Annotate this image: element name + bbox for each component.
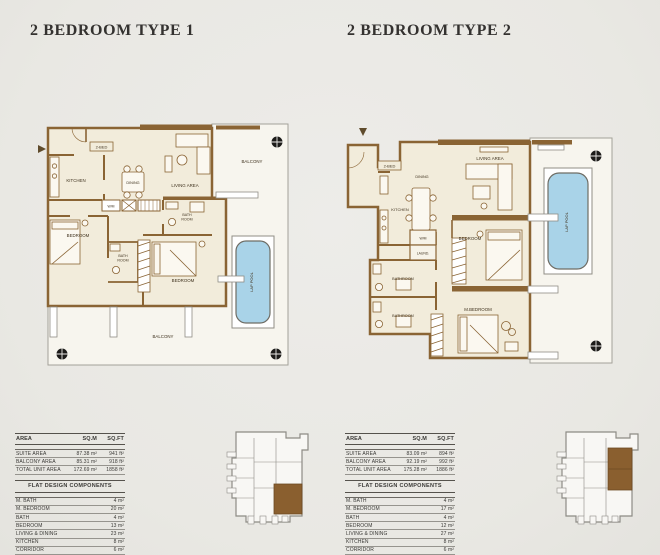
table-row: BATH4 m² [345, 514, 455, 522]
table-row: M. BEDROOM17 m² [345, 506, 455, 514]
bathroom2-label-line2: ROOM [117, 259, 128, 263]
row-sqft: 1858 ft² [97, 467, 124, 473]
kitchen-counter-icon [50, 157, 59, 197]
bathroom2-label-line1: BATH [118, 254, 128, 258]
row-label: BALCONY AREA [346, 459, 397, 465]
bedroom-label: BEDROOM [459, 236, 482, 241]
table-row: KITCHEN8 m² [15, 539, 125, 547]
row-label: CORRIDOR [346, 547, 427, 553]
unit-tag-label: 2-BED [384, 164, 396, 169]
row-sqft: 894 ft² [427, 451, 454, 457]
area-table-type1: AREA SQ.M SQ.FT SUITE AREA 87.38 m² 941 … [15, 433, 125, 555]
table-row: LIVING & DINING27 m² [345, 530, 455, 538]
bedroom2-label: BEDROOM [172, 278, 195, 283]
row-label: SUITE AREA [346, 451, 397, 457]
row-label: BEDROOM [346, 523, 427, 529]
area-table-type2: AREA SQ.M SQ.FT SUITE AREA 83.09 m² 894 … [345, 433, 455, 555]
keyplan-type2 [554, 428, 646, 532]
row-value: 4 m² [427, 515, 454, 521]
row-value: 20 m² [97, 506, 124, 512]
highlighted-unit [274, 484, 302, 514]
table-row: M. BEDROOM20 m² [15, 506, 125, 514]
kitchen-label: KITCHEN [391, 207, 409, 212]
section-title: FLAT DESIGN COMPONENTS [345, 480, 455, 493]
row-label: KITCHEN [16, 539, 97, 545]
section-title: FLAT DESIGN COMPONENTS [15, 480, 125, 493]
row-sqft: 1886 ft² [427, 467, 454, 473]
component-rows: M. BATH4 m² M. BEDROOM17 m² BATH4 m² BED… [345, 497, 455, 555]
row-value: 6 m² [97, 547, 124, 553]
row-value: 13 m² [97, 523, 124, 529]
table-row: CORRIDOR6 m² [345, 547, 455, 555]
keyplan-type1 [224, 428, 316, 532]
row-label: M. BEDROOM [16, 506, 97, 512]
row-sqm: 175.28 m² [397, 467, 427, 473]
table-row: TOTAL UNIT AREA 175.28 m² 1886 ft² [345, 466, 455, 474]
row-value: 8 m² [97, 539, 124, 545]
dining-label: DINING [126, 181, 139, 185]
row-label: BEDROOM [16, 523, 97, 529]
bathroom1-label-line1: BATH [182, 213, 192, 217]
balcony-top-label: BALCONY [242, 159, 263, 164]
col-area: AREA [346, 436, 397, 442]
table-row: KITCHEN8 m² [345, 539, 455, 547]
unit-tag-label: 2-BED [96, 145, 108, 150]
row-label: TOTAL UNIT AREA [346, 467, 397, 473]
col-sqft: SQ.FT [427, 436, 454, 442]
lap-pool-label: LAP POOL [564, 211, 569, 231]
row-label: M. BATH [16, 498, 97, 504]
table-row: BALCONY AREA 85.31 m² 918 ft² [15, 458, 125, 466]
row-label: LIVING & DINING [16, 531, 97, 537]
row-label: SUITE AREA [16, 451, 67, 457]
closet-hatch [138, 240, 150, 292]
wm-label: W/M [420, 237, 427, 241]
row-sqm: 172.69 m² [67, 467, 97, 473]
row-sqm: 83.09 m² [397, 451, 427, 457]
row-label: TOTAL UNIT AREA [16, 467, 67, 473]
utility-boxes [410, 230, 436, 260]
table-row: BATH4 m² [15, 514, 125, 522]
row-value: 17 m² [427, 506, 454, 512]
row-label: KITCHEN [346, 539, 427, 545]
row-label: CORRIDOR [16, 547, 97, 553]
living-area-label: LIVING AREA [171, 183, 198, 188]
bathroom2-label: BATHROOM [392, 314, 414, 318]
table-header: AREA SQ.M SQ.FT [345, 433, 455, 445]
col-sqm: SQ.M [397, 436, 427, 442]
row-value: 4 m² [427, 498, 454, 504]
bathroom1-label: BATHROOM [392, 277, 414, 281]
brochure-page: 2 BEDROOM TYPE 1 2 BEDROOM TYPE 2 [0, 0, 660, 555]
col-area: AREA [16, 436, 67, 442]
table-row: SUITE AREA 87.38 m² 941 ft² [15, 450, 125, 458]
row-sqft: 941 ft² [97, 451, 124, 457]
table-header: AREA SQ.M SQ.FT [15, 433, 125, 445]
row-value: 27 m² [427, 531, 454, 537]
m-bedroom-label: M.BEDROOM [464, 307, 492, 312]
table-row: SUITE AREA 83.09 m² 894 ft² [345, 450, 455, 458]
table-row: M. BATH4 m² [15, 498, 125, 506]
row-value: 12 m² [427, 523, 454, 529]
table-row: LIVING & DINING23 m² [15, 530, 125, 538]
col-sqm: SQ.M [67, 436, 97, 442]
laundry-label: LAUND. [417, 252, 429, 256]
area-rows: SUITE AREA 87.38 m² 941 ft² BALCONY AREA… [15, 449, 125, 475]
wm-label: W/M [108, 205, 115, 209]
row-value: 4 m² [97, 498, 124, 504]
row-label: LIVING & DINING [346, 531, 427, 537]
table-row: M. BATH4 m² [345, 498, 455, 506]
row-sqm: 85.31 m² [67, 459, 97, 465]
kitchen-label: KITCHEN [66, 178, 85, 183]
row-label: BATH [346, 515, 427, 521]
entry-arrow-icon [38, 145, 46, 153]
row-sqft: 992 ft² [427, 459, 454, 465]
table-row: TOTAL UNIT AREA 172.69 m² 1858 ft² [15, 466, 125, 474]
entry-arrow-icon [359, 128, 367, 136]
row-value: 8 m² [427, 539, 454, 545]
lap-pool-label: LAP POOL [249, 271, 254, 291]
dining-label: DINING [415, 175, 428, 179]
bedroom1-label: BEDROOM [67, 233, 90, 238]
row-label: BALCONY AREA [16, 459, 67, 465]
col-sqft: SQ.FT [97, 436, 124, 442]
component-rows: M. BATH4 m² M. BEDROOM20 m² BATH4 m² BED… [15, 497, 125, 555]
table-row: BEDROOM12 m² [345, 522, 455, 530]
row-label: M. BEDROOM [346, 506, 427, 512]
row-value: 4 m² [97, 515, 124, 521]
row-value: 6 m² [427, 547, 454, 553]
row-value: 23 m² [97, 531, 124, 537]
table-row: CORRIDOR6 m² [15, 547, 125, 555]
row-sqm: 87.38 m² [67, 451, 97, 457]
bathroom1-label-line2: ROOM [181, 218, 192, 222]
floorplan-type1: 2-BED KITCHEN DINING LIVING AREA W/M BAT… [30, 110, 320, 375]
area-rows: SUITE AREA 83.09 m² 894 ft² BALCONY AREA… [345, 449, 455, 475]
plan2-title: 2 BEDROOM TYPE 2 [347, 22, 511, 40]
table-row: BALCONY AREA 92.19 m² 992 ft² [345, 458, 455, 466]
row-label: BATH [16, 515, 97, 521]
highlighted-unit [608, 448, 632, 490]
table-row: BEDROOM13 m² [15, 522, 125, 530]
living-area-label: LIVING AREA [476, 156, 503, 161]
balcony-bottom-label: BALCONY [153, 334, 174, 339]
row-sqm: 92.19 m² [397, 459, 427, 465]
floorplan-type2: 2-BED DINING KITCHEN LIVING AREA W/M LAU… [340, 112, 630, 407]
plan1-title: 2 BEDROOM TYPE 1 [30, 22, 194, 40]
row-sqft: 918 ft² [97, 459, 124, 465]
row-label: M. BATH [346, 498, 427, 504]
